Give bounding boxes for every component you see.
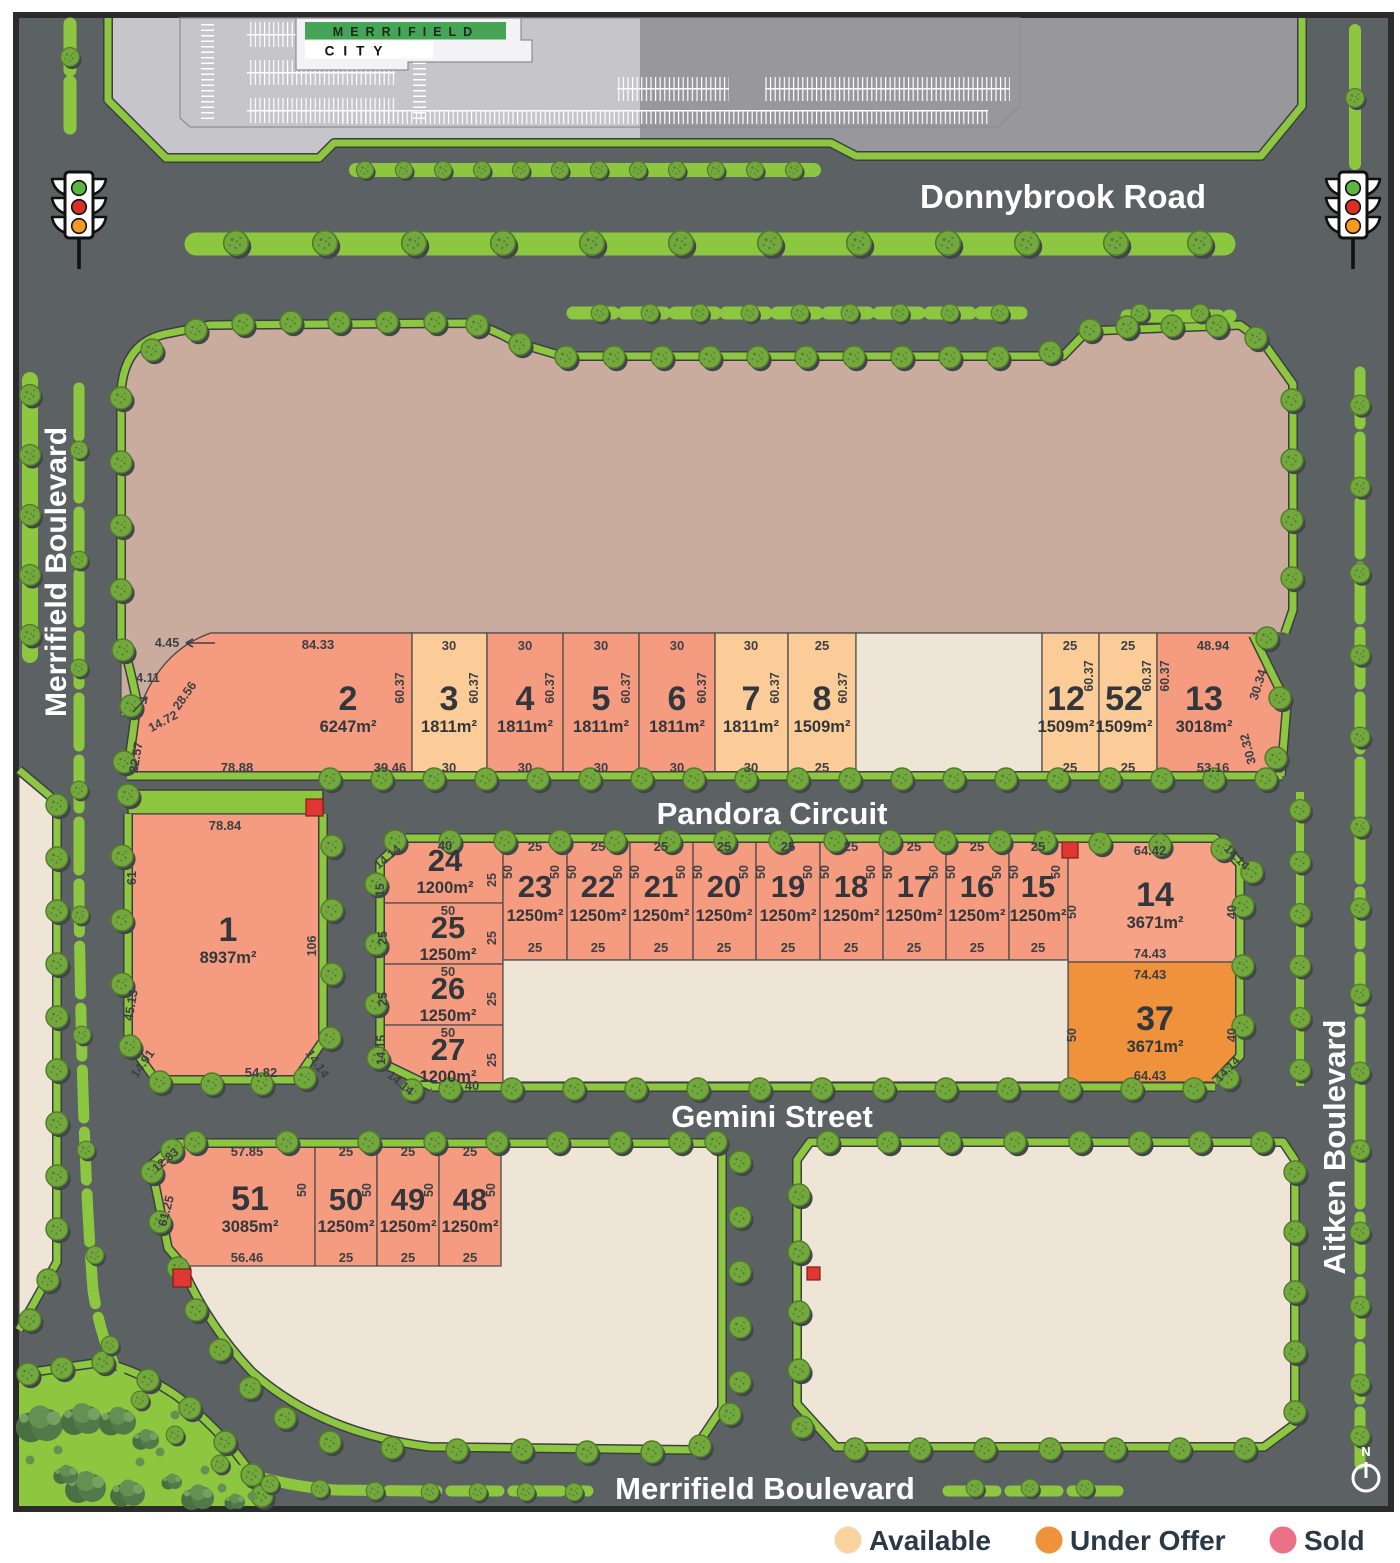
- svg-text:50: 50: [441, 903, 455, 918]
- svg-text:25: 25: [591, 839, 605, 854]
- svg-text:30: 30: [518, 760, 532, 775]
- svg-text:25: 25: [485, 1053, 499, 1067]
- svg-text:25: 25: [485, 873, 499, 887]
- svg-text:50: 50: [864, 865, 878, 879]
- svg-text:25: 25: [376, 992, 390, 1006]
- svg-text:1250m²: 1250m²: [507, 907, 564, 925]
- svg-text:15: 15: [373, 883, 387, 897]
- svg-text:37: 37: [1136, 1000, 1174, 1038]
- svg-text:3671m²: 3671m²: [1127, 1038, 1184, 1056]
- svg-text:1250m²: 1250m²: [949, 907, 1006, 925]
- svg-text:25: 25: [781, 940, 795, 955]
- svg-text:1250m²: 1250m²: [760, 907, 817, 925]
- svg-text:1250m²: 1250m²: [886, 907, 943, 925]
- svg-text:60.37: 60.37: [393, 672, 407, 703]
- svg-text:Sold: Sold: [1304, 1525, 1365, 1556]
- svg-text:Merrifield Boulevard: Merrifield Boulevard: [40, 427, 73, 717]
- svg-text:30: 30: [744, 638, 758, 653]
- svg-text:57.85: 57.85: [231, 1144, 264, 1159]
- svg-text:53.16: 53.16: [1197, 760, 1230, 775]
- svg-text:60.37: 60.37: [695, 672, 709, 703]
- svg-text:25: 25: [1031, 940, 1045, 955]
- svg-text:50: 50: [944, 865, 958, 879]
- svg-text:25: 25: [717, 940, 731, 955]
- svg-text:3018m²: 3018m²: [1176, 718, 1233, 736]
- svg-text:40: 40: [438, 838, 452, 853]
- svg-text:50: 50: [1007, 865, 1021, 879]
- svg-text:25: 25: [401, 1144, 415, 1159]
- svg-text:25: 25: [485, 992, 499, 1006]
- svg-text:25: 25: [1121, 760, 1135, 775]
- svg-text:74.43: 74.43: [1134, 946, 1167, 961]
- svg-text:25: 25: [1063, 638, 1077, 653]
- svg-text:Pandora Circuit: Pandora Circuit: [657, 796, 888, 831]
- svg-text:49: 49: [391, 1182, 425, 1217]
- svg-text:30: 30: [594, 638, 608, 653]
- svg-text:1250m²: 1250m²: [318, 1218, 375, 1236]
- svg-text:25: 25: [844, 940, 858, 955]
- svg-text:1509m²: 1509m²: [1096, 718, 1153, 736]
- svg-text:50: 50: [818, 865, 832, 879]
- svg-text:1250m²: 1250m²: [420, 946, 477, 964]
- svg-text:30: 30: [442, 638, 456, 653]
- svg-text:2: 2: [339, 680, 358, 718]
- svg-text:106: 106: [305, 936, 319, 957]
- svg-text:48.94: 48.94: [1197, 638, 1230, 653]
- svg-text:1250m²: 1250m²: [633, 907, 690, 925]
- svg-text:50: 50: [737, 865, 751, 879]
- svg-text:40: 40: [1225, 905, 1239, 919]
- svg-text:1811m²: 1811m²: [649, 718, 705, 736]
- svg-text:25: 25: [485, 931, 499, 945]
- svg-text:3671m²: 3671m²: [1127, 914, 1184, 932]
- svg-text:50: 50: [295, 1183, 309, 1197]
- svg-text:61: 61: [125, 871, 139, 885]
- svg-text:25: 25: [528, 839, 542, 854]
- svg-text:13: 13: [1185, 680, 1223, 718]
- svg-text:8: 8: [813, 680, 832, 718]
- svg-text:25: 25: [528, 940, 542, 955]
- svg-text:25: 25: [907, 839, 921, 854]
- svg-text:52: 52: [1105, 680, 1143, 718]
- svg-text:50: 50: [501, 865, 515, 879]
- svg-text:5: 5: [592, 680, 611, 718]
- svg-text:6: 6: [668, 680, 687, 718]
- svg-text:50: 50: [691, 865, 705, 879]
- svg-text:25: 25: [654, 839, 668, 854]
- svg-text:1811m²: 1811m²: [421, 718, 477, 736]
- svg-text:1250m²: 1250m²: [570, 907, 627, 925]
- svg-text:54.82: 54.82: [245, 1065, 278, 1080]
- svg-text:4.11: 4.11: [136, 671, 160, 685]
- svg-text:Under Offer: Under Offer: [1070, 1525, 1226, 1556]
- svg-text:50: 50: [990, 865, 1004, 879]
- svg-text:1: 1: [219, 911, 238, 949]
- svg-text:25: 25: [654, 940, 668, 955]
- svg-text:1811m²: 1811m²: [573, 718, 629, 736]
- svg-text:30: 30: [670, 760, 684, 775]
- svg-text:1811m²: 1811m²: [723, 718, 779, 736]
- svg-text:14: 14: [1136, 876, 1174, 914]
- svg-text:30: 30: [442, 760, 456, 775]
- svg-text:1250m²: 1250m²: [696, 907, 753, 925]
- svg-text:3: 3: [440, 680, 459, 718]
- svg-text:50: 50: [1049, 865, 1063, 879]
- svg-text:50: 50: [628, 865, 642, 879]
- svg-text:50: 50: [441, 964, 455, 979]
- svg-text:1509m²: 1509m²: [794, 718, 851, 736]
- svg-text:MERRIFIELD: MERRIFIELD: [333, 25, 479, 39]
- svg-text:60.37: 60.37: [619, 672, 633, 703]
- svg-text:1250m²: 1250m²: [823, 907, 880, 925]
- svg-text:Donnybrook Road: Donnybrook Road: [920, 178, 1206, 215]
- svg-text:40: 40: [465, 1078, 479, 1093]
- svg-text:60.37: 60.37: [1082, 660, 1096, 691]
- svg-text:Merrifield Boulevard: Merrifield Boulevard: [615, 1471, 915, 1506]
- svg-text:25: 25: [463, 1250, 477, 1265]
- svg-text:25: 25: [907, 940, 921, 955]
- svg-text:25: 25: [591, 940, 605, 955]
- svg-text:50: 50: [927, 865, 941, 879]
- svg-text:50: 50: [881, 865, 895, 879]
- svg-text:N: N: [1361, 1444, 1370, 1459]
- svg-text:30: 30: [518, 638, 532, 653]
- svg-text:60.37: 60.37: [1158, 660, 1172, 691]
- svg-text:50: 50: [484, 1183, 498, 1197]
- svg-text:50: 50: [801, 865, 815, 879]
- svg-text:1250m²: 1250m²: [442, 1218, 499, 1236]
- svg-text:25: 25: [401, 1250, 415, 1265]
- svg-text:84.33: 84.33: [302, 637, 335, 652]
- svg-text:50: 50: [360, 1183, 374, 1197]
- svg-text:1509m²: 1509m²: [1038, 718, 1095, 736]
- svg-text:25: 25: [1063, 760, 1077, 775]
- svg-text:1250m²: 1250m²: [380, 1218, 437, 1236]
- svg-text:1811m²: 1811m²: [497, 718, 553, 736]
- svg-text:4: 4: [516, 680, 535, 718]
- svg-text:50: 50: [611, 865, 625, 879]
- svg-text:30: 30: [670, 638, 684, 653]
- svg-text:1250m²: 1250m²: [1010, 907, 1067, 925]
- svg-text:6247m²: 6247m²: [320, 718, 377, 736]
- svg-text:1200m²: 1200m²: [417, 879, 474, 897]
- svg-text:8937m²: 8937m²: [200, 949, 257, 967]
- svg-text:78.84: 78.84: [209, 818, 242, 833]
- svg-text:25: 25: [844, 839, 858, 854]
- svg-text:50: 50: [329, 1182, 363, 1217]
- svg-text:25: 25: [339, 1250, 353, 1265]
- svg-text:50: 50: [441, 1025, 455, 1040]
- svg-text:64.43: 64.43: [1134, 1068, 1167, 1083]
- svg-text:25: 25: [781, 839, 795, 854]
- svg-text:50: 50: [1065, 905, 1079, 919]
- svg-text:50: 50: [565, 865, 579, 879]
- svg-text:12: 12: [1047, 680, 1085, 718]
- svg-text:50: 50: [754, 865, 768, 879]
- svg-text:30: 30: [594, 760, 608, 775]
- svg-text:4.45: 4.45: [155, 636, 179, 650]
- svg-text:60.37: 60.37: [768, 672, 782, 703]
- svg-text:25: 25: [1031, 839, 1045, 854]
- svg-text:25: 25: [376, 931, 390, 945]
- svg-text:14.15: 14.15: [374, 1035, 388, 1065]
- svg-text:60.37: 60.37: [1140, 660, 1154, 691]
- svg-text:40: 40: [1225, 1028, 1239, 1042]
- svg-text:Gemini Street: Gemini Street: [671, 1099, 873, 1134]
- svg-text:50: 50: [1065, 1028, 1079, 1042]
- svg-text:25: 25: [970, 839, 984, 854]
- svg-text:25: 25: [339, 1144, 353, 1159]
- svg-text:64.42: 64.42: [1134, 843, 1167, 858]
- svg-text:7: 7: [742, 680, 761, 718]
- svg-text:30: 30: [744, 760, 758, 775]
- svg-text:50: 50: [674, 865, 688, 879]
- svg-text:60.37: 60.37: [467, 672, 481, 703]
- svg-text:1250m²: 1250m²: [420, 1007, 477, 1025]
- svg-text:25: 25: [1121, 638, 1135, 653]
- svg-text:25: 25: [463, 1144, 477, 1159]
- svg-text:25: 25: [815, 760, 829, 775]
- svg-text:Aitken Boulevard: Aitken Boulevard: [1317, 1020, 1352, 1275]
- svg-text:Available: Available: [869, 1525, 991, 1556]
- svg-text:51: 51: [231, 1180, 269, 1218]
- svg-text:3085m²: 3085m²: [222, 1218, 279, 1236]
- svg-text:39.46: 39.46: [374, 760, 407, 775]
- svg-text:56.46: 56.46: [231, 1250, 264, 1265]
- svg-text:78.88: 78.88: [221, 760, 254, 775]
- svg-text:25: 25: [717, 839, 731, 854]
- svg-text:50: 50: [548, 865, 562, 879]
- svg-text:25: 25: [815, 638, 829, 653]
- svg-text:50: 50: [422, 1183, 436, 1197]
- svg-text:60.37: 60.37: [543, 672, 557, 703]
- svg-text:25: 25: [970, 940, 984, 955]
- svg-text:74.43: 74.43: [1134, 967, 1167, 982]
- svg-text:60.37: 60.37: [836, 672, 850, 703]
- svg-text:CITY: CITY: [325, 44, 392, 59]
- svg-text:48: 48: [453, 1182, 487, 1217]
